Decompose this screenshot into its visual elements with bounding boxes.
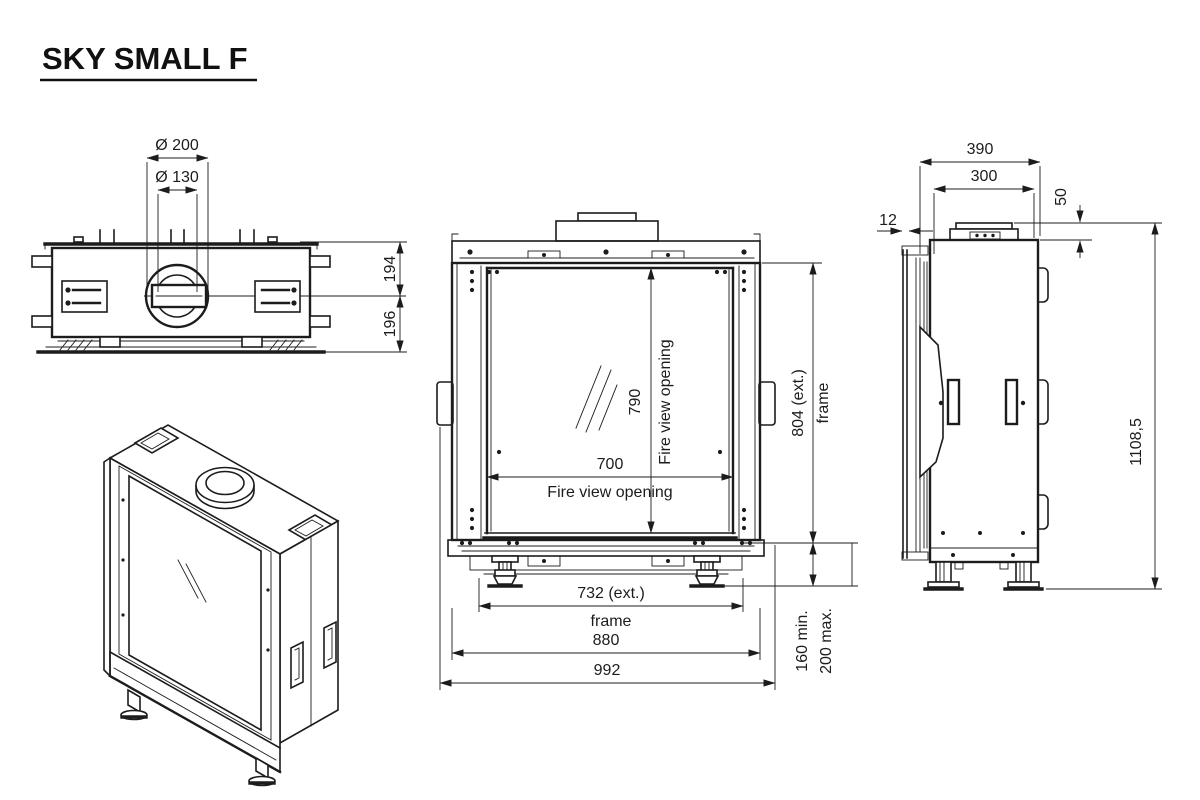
mounting-clip-right [759, 382, 775, 425]
iso-flue-collar [196, 468, 254, 509]
adjustable-foot-right [691, 556, 723, 586]
dim-frame-offset: 12 [879, 212, 897, 229]
rear-clips [1038, 268, 1048, 529]
iso-foot-right [249, 758, 275, 786]
dim-flue-inner-diameter: Ø 130 [155, 169, 199, 186]
side-body [930, 240, 1038, 562]
side-flue-collar [950, 223, 1018, 240]
side-view: 390 300 12 50 1108,5 [877, 141, 1162, 589]
top-view-pins [74, 230, 277, 242]
adjustable-foot-left [489, 556, 521, 586]
drawing-title-block: SKY SMALL F [40, 41, 257, 80]
handle-slot-front [948, 380, 959, 424]
handle-slot-back [1006, 380, 1017, 424]
mounting-clip-left [437, 382, 453, 425]
label-fire-view-opening-vertical: Fire view opening [657, 339, 674, 464]
label-frame-vertical: frame [815, 382, 832, 423]
dim-body-width: 880 [593, 632, 620, 649]
front-view: 790 Fire view opening 700 Fire view open… [437, 213, 858, 690]
label-fire-view-opening-horizontal: Fire view opening [547, 484, 672, 501]
label-frame-horizontal: frame [591, 613, 632, 630]
dim-flue-center-from-front: 194 [382, 256, 399, 283]
side-foot-front [925, 562, 962, 589]
page-title: SKY SMALL F [42, 41, 248, 76]
technical-drawing: SKY SMALL F [0, 0, 1200, 800]
top-view-left-fittings [32, 256, 107, 327]
side-foot-back [1005, 562, 1042, 589]
dim-plinth-min: 160 min. [794, 610, 811, 671]
front-view-dimensions: 790 Fire view opening 700 Fire view open… [440, 263, 858, 690]
dim-opening-height: 790 [627, 389, 644, 416]
dim-flue-outer-diameter: Ø 200 [155, 137, 199, 154]
dim-overall-width: 992 [594, 662, 621, 679]
top-view-right-fittings [255, 256, 330, 327]
dim-frame-height: 804 (ext.) [790, 369, 807, 437]
dim-body-depth: 300 [971, 168, 998, 185]
drawing-page: SKY SMALL F [0, 0, 1200, 800]
isometric-view [104, 425, 338, 786]
dim-overall-height: 1108,5 [1128, 418, 1145, 466]
front-flue-collar [556, 213, 658, 241]
top-view-base [38, 337, 324, 352]
reflection-lines [576, 366, 617, 432]
top-view: Ø 200 Ø 130 194 196 [32, 137, 407, 352]
dim-flue-center-from-back: 196 [382, 311, 399, 338]
dim-overall-depth: 390 [967, 141, 994, 158]
dim-collar-height: 50 [1053, 188, 1070, 206]
dim-frame-width: 732 (ext.) [577, 585, 645, 602]
dim-plinth-max: 200 max. [818, 608, 835, 674]
dim-opening-width: 700 [597, 456, 624, 473]
iso-left-frame-band [104, 458, 110, 676]
